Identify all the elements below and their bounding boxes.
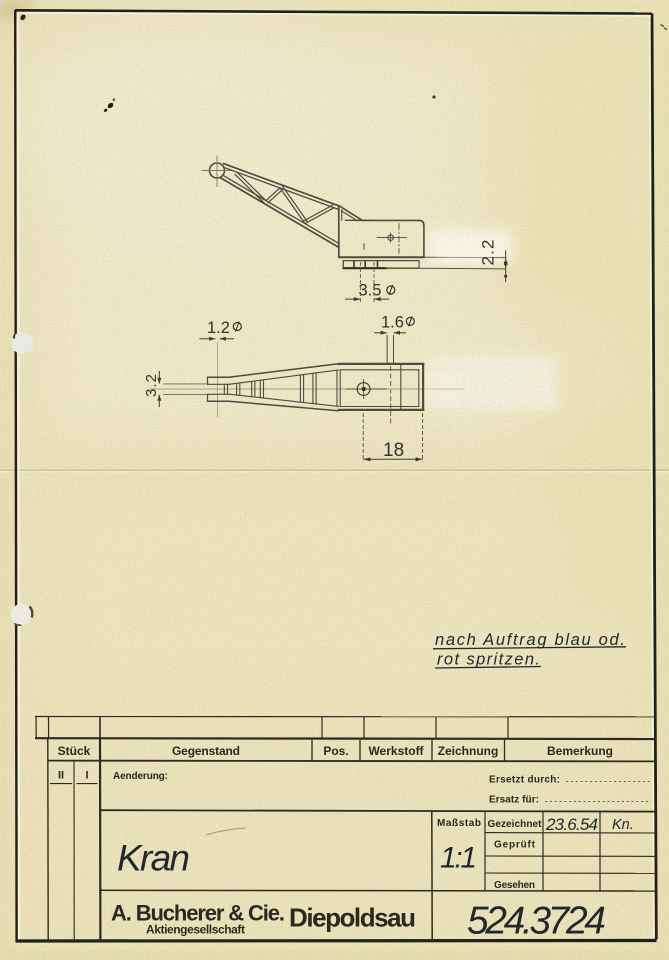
svg-text:1.6: 1.6 [381, 314, 404, 332]
svg-text:Stück: Stück [58, 744, 91, 758]
svg-text:524.3724: 524.3724 [467, 900, 606, 943]
svg-text:Geprüft: Geprüft [494, 840, 536, 851]
svg-text:3.2: 3.2 [143, 374, 160, 397]
svg-text:Ersatz für:: Ersatz für: [489, 795, 539, 806]
svg-text:Gegenstand: Gegenstand [172, 744, 240, 758]
svg-text:Werkstoff: Werkstoff [368, 744, 424, 758]
svg-text:Kran: Kran [117, 838, 190, 879]
svg-text:Kn.: Kn. [612, 817, 634, 833]
svg-text:Gezeichnet: Gezeichnet [488, 819, 543, 830]
svg-text:1:1: 1:1 [440, 842, 477, 875]
svg-text:1.2: 1.2 [207, 319, 230, 337]
svg-text:I: I [85, 770, 88, 782]
svg-text:Aenderung:: Aenderung: [113, 771, 168, 782]
svg-text:Aktiengesellschaft: Aktiengesellschaft [146, 923, 245, 937]
svg-text:Bemerkung: Bemerkung [547, 744, 613, 758]
svg-text:2.2: 2.2 [479, 240, 498, 266]
svg-text:23.6.54: 23.6.54 [545, 815, 598, 834]
svg-text:Ersetzt durch:: Ersetzt durch: [489, 775, 560, 786]
svg-text:Maßstab: Maßstab [437, 818, 481, 829]
svg-text:Pos.: Pos. [323, 744, 348, 758]
svg-text:Gesehen: Gesehen [494, 880, 535, 891]
svg-text:nach Auftrag blau od.: nach Auftrag blau od. [435, 631, 625, 649]
svg-text:Zeichnung: Zeichnung [438, 744, 499, 758]
svg-text:18: 18 [383, 440, 404, 461]
svg-text:3.5: 3.5 [359, 282, 382, 300]
svg-text:Diepoldsau: Diepoldsau [289, 903, 416, 933]
svg-text:II: II [58, 770, 64, 782]
svg-text:rot spritzen.: rot spritzen. [437, 651, 540, 669]
